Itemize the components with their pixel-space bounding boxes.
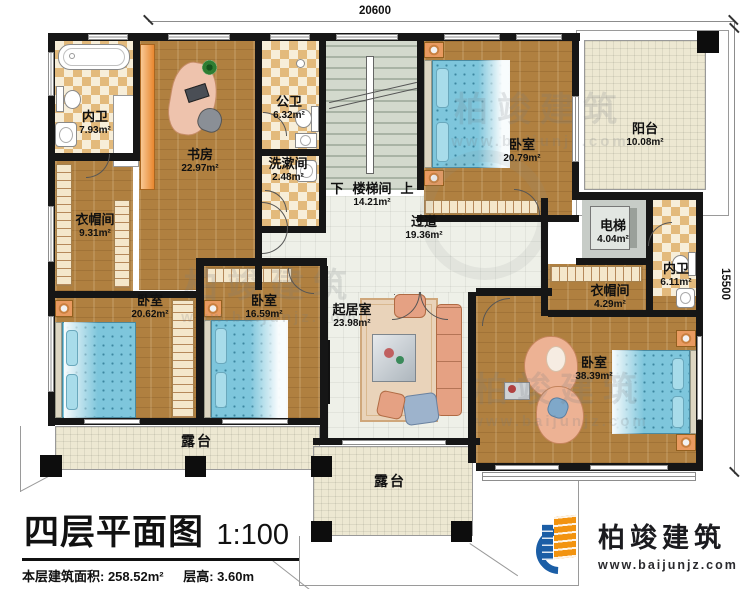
room-area: 14.21m² (352, 197, 391, 208)
room-area: 22.97m² (181, 163, 218, 174)
table-decor (396, 356, 404, 364)
room-area: 6.11m² (660, 277, 691, 288)
window (222, 419, 288, 424)
room-name: 衣帽间 (590, 284, 629, 299)
room-name: 卧室 (131, 294, 168, 309)
column (451, 521, 472, 542)
title-line: 四层平面图 1:100 (22, 504, 299, 561)
room-area: 2.48m² (268, 172, 307, 183)
room-area: 7.93m² (79, 125, 111, 136)
light-fixture (296, 59, 305, 68)
logo-building-blue (542, 524, 553, 560)
sink-basin (680, 292, 691, 304)
brand-url: www.baijunjz.com (598, 558, 750, 572)
stairs-down-label: 下 (330, 182, 343, 197)
room-name: 衣帽间 (75, 213, 114, 228)
terrace2-floor (313, 446, 473, 536)
column (697, 31, 719, 53)
wall (468, 292, 476, 463)
plan-title: 四层平面图 (24, 513, 204, 552)
brand-name: 柏竣建筑 (598, 516, 750, 555)
elevator-door (630, 208, 637, 248)
window (697, 336, 702, 420)
stairs-up: 上 (400, 182, 413, 197)
top-dimension-line (148, 21, 734, 22)
sink-basin (59, 127, 73, 143)
room-name: 洗漱间 (268, 157, 307, 172)
window (168, 34, 230, 40)
room-label-bath1: 内卫 7.93m² (79, 110, 111, 136)
room-area: 10.08m² (626, 137, 663, 148)
room-label-study: 书房 22.97m² (181, 148, 218, 174)
chaise-pillow (546, 346, 566, 372)
right-dimension-label: 15500 (719, 268, 731, 300)
window (48, 316, 54, 392)
clothes-rack (114, 200, 130, 288)
toilet-tank (311, 106, 319, 132)
clothes-rack (56, 164, 72, 286)
room-area: 6.32m² (273, 110, 305, 121)
room-label-stairwell: 楼梯间 14.21m² (352, 182, 391, 208)
dimension-tick (143, 15, 153, 25)
room-area: 38.39m² (575, 371, 612, 382)
porch-outline (469, 543, 518, 576)
logo-building-orange (554, 515, 576, 559)
armchair (402, 392, 440, 426)
room-name: 书房 (181, 148, 218, 163)
wall (417, 41, 424, 190)
room-label-publicbath: 公卫 6.32m² (273, 95, 305, 121)
nightstand (676, 330, 696, 347)
window (342, 440, 446, 445)
room-name: 楼梯间 (352, 182, 391, 197)
window (88, 34, 128, 40)
room-name: 起居室 (332, 303, 371, 318)
wall (133, 41, 140, 161)
window (516, 34, 562, 40)
room-label-bedroom-tr: 卧室 20.79m² (503, 138, 540, 164)
table-decor (384, 348, 394, 358)
wall (196, 258, 204, 418)
brand-logo-icon (536, 514, 592, 578)
table-decor (508, 385, 516, 393)
room-area: 9.31m² (75, 228, 114, 239)
pillow (215, 328, 227, 364)
coffee-table (372, 334, 416, 382)
sofa (436, 304, 462, 416)
room-name: 电梯 (597, 219, 629, 234)
pillow (672, 358, 684, 390)
top-dimension-label: 20600 (350, 5, 400, 17)
wall (541, 198, 548, 316)
wall (48, 291, 204, 298)
room-label-cloakroom2: 衣帽间 4.29m² (590, 284, 629, 310)
column (311, 456, 332, 477)
wall (196, 258, 327, 266)
room-label-balcony: 阳台 10.08m² (626, 122, 663, 148)
floor-plan-canvas: 20600 15500 柏竣建筑 www.baijunjz.com 柏竣建筑 w… (0, 0, 750, 589)
wall (319, 41, 326, 233)
wall (320, 266, 328, 438)
washer-door (300, 135, 311, 146)
terrace2-label: 露台 (374, 474, 406, 490)
armchair (376, 390, 407, 421)
room-name: 露台 (374, 474, 406, 490)
wall (576, 258, 653, 265)
bed-headboard (424, 60, 432, 168)
brand-text: 柏竣建筑 www.baijunjz.com (598, 516, 750, 572)
room-name: 卧室 (575, 356, 612, 371)
room-name: 卧室 (503, 138, 540, 153)
window (590, 465, 668, 470)
room-label-elevator: 电梯 4.04m² (597, 219, 629, 245)
stairs-up-label: 上 (400, 182, 413, 197)
window (270, 34, 310, 40)
terrace1-label: 露台 (181, 434, 213, 450)
window (48, 52, 54, 96)
room-balcony-floor (584, 40, 706, 190)
title-block: 四层平面图 1:100 本层建筑面积: 258.52m² 层高: 3.60m (22, 504, 299, 585)
wall (696, 192, 703, 471)
room-name: 阳台 (626, 122, 663, 137)
room-area: 20.79m² (503, 153, 540, 164)
room-label-cloakroom1: 衣帽间 9.31m² (75, 213, 114, 239)
wardrobe-strip (140, 44, 155, 190)
wall (262, 149, 319, 156)
wardrobe (206, 268, 292, 283)
porch-outline (299, 585, 579, 586)
room-name: 卧室 (245, 294, 282, 309)
room-area: 4.29m² (590, 299, 629, 310)
toilet-tank (56, 86, 64, 112)
room-name: 内卫 (660, 262, 691, 277)
porch-outline (299, 536, 300, 585)
toilet-bowl (64, 90, 81, 109)
pillow (215, 372, 227, 408)
window (48, 206, 54, 262)
bed-headboard (55, 322, 62, 418)
floor-height-text: 层高: 3.60m (183, 569, 254, 584)
window (336, 34, 398, 40)
wall (646, 192, 653, 317)
wall (255, 41, 262, 290)
column (311, 521, 332, 542)
balcony-slider (572, 96, 579, 162)
plant (202, 60, 217, 75)
room-area: 20.62m² (131, 309, 168, 320)
window (495, 465, 559, 470)
room-label-bedroom-mid: 卧室 16.59m² (245, 294, 282, 320)
pillow (66, 330, 78, 366)
window (84, 419, 140, 424)
bed-headboard (204, 320, 211, 418)
pillow (672, 396, 684, 428)
bathtub-drain (69, 53, 75, 59)
nightstand (55, 300, 73, 317)
room-label-hallway: 过道 19.36m² (405, 215, 442, 241)
room-label-livingroom: 起居室 23.98m² (332, 303, 371, 329)
room-area: 4.04m² (597, 234, 629, 245)
window-sill (482, 472, 696, 481)
wall (572, 192, 703, 200)
nightstand (424, 42, 444, 58)
bed-blanket (612, 350, 644, 434)
pillow (436, 68, 449, 108)
stair-rail (366, 56, 374, 174)
window (444, 34, 500, 40)
column (185, 456, 206, 477)
plan-scale: 1:100 (216, 519, 289, 551)
pillow (436, 122, 449, 162)
room-area: 19.36m² (405, 230, 442, 241)
closet-ladder (172, 300, 194, 418)
room-name: 内卫 (79, 110, 111, 125)
nightstand (676, 434, 696, 451)
pillow (66, 374, 78, 410)
room-label-bedroom-left: 卧室 20.62m² (131, 294, 168, 320)
porch-outline (20, 426, 21, 492)
nightstand (204, 300, 222, 317)
stairs-down: 下 (330, 182, 343, 197)
room-label-bath2: 内卫 6.11m² (660, 262, 691, 288)
room-area: 23.98m² (332, 318, 371, 329)
right-dimension-line (734, 22, 735, 474)
room-area: 16.59m² (245, 309, 282, 320)
bed-blanket (250, 320, 288, 418)
clothes-rack (550, 266, 642, 282)
room-label-washroom: 洗漱间 2.48m² (268, 157, 307, 183)
room-name: 露台 (181, 434, 213, 450)
room-name: 公卫 (273, 95, 305, 110)
column (40, 455, 62, 477)
title-info-line: 本层建筑面积: 258.52m² 层高: 3.60m (22, 566, 299, 585)
wall (548, 310, 696, 317)
room-name: 过道 (405, 215, 442, 230)
floor-area-text: 本层建筑面积: 258.52m² (22, 569, 164, 584)
room-label-bedroom-br: 卧室 38.39m² (575, 356, 612, 382)
